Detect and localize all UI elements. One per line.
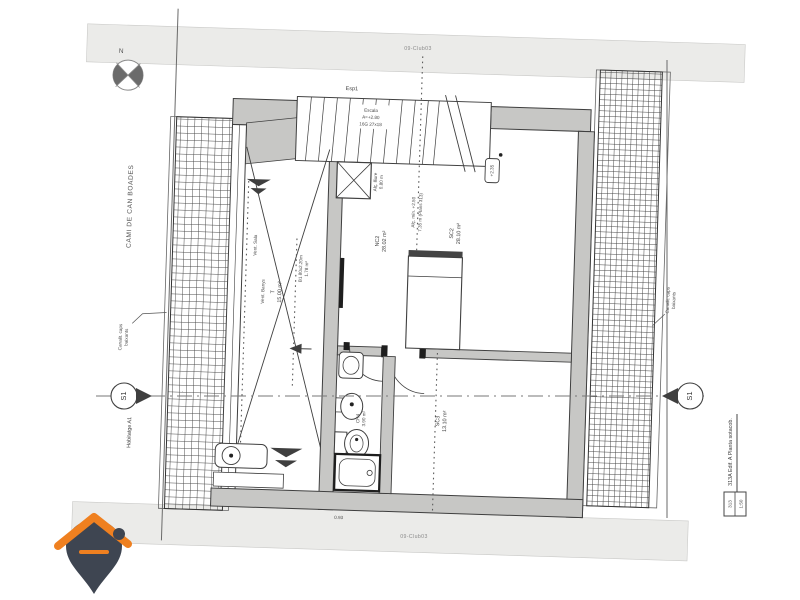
stair-label-2: A=+2.80 — [362, 115, 380, 121]
door-jamb-left — [381, 345, 387, 357]
section-marker-right: S1 — [662, 383, 703, 409]
room-b1-name: B1 80x2.20m — [298, 255, 304, 282]
room-b1-area: 1.78 m² — [304, 261, 310, 277]
logo-wordmark-bar — [79, 550, 109, 554]
staircase: Escala A=+2.80 16G 27x18 — [295, 90, 491, 172]
title-block: 313A Edif. A Planta sotacob. 313 1:50 — [724, 414, 746, 516]
slope-arrow-bottom — [270, 448, 303, 468]
section-marker-left: S1 — [111, 383, 152, 409]
floor-plan-canvas: N CAMI DE CAN BOADES Habitatge A1 Canali… — [0, 0, 800, 600]
bench — [213, 472, 283, 488]
stair-label-1: Escala — [364, 108, 378, 113]
ridge-annotation: Alç. mín. +2.50 7.35 m (Plans 313) — [410, 192, 423, 232]
ridge-note-1: Alç. mín. +2.50 — [410, 196, 416, 227]
canal-right-line1: Canalit. caps — [665, 286, 671, 313]
ref-bottom: 09-Club03 — [400, 534, 428, 540]
bed — [406, 250, 463, 350]
logo-roof-dot — [113, 528, 125, 540]
section-arrow-right — [662, 388, 678, 404]
room-nc2-area: 28.02 m² — [382, 230, 389, 252]
vent-banys-label: Vent. Banys — [260, 278, 266, 303]
dwelling-label: Habitatge A1 — [126, 417, 133, 448]
room-t-name: T — [270, 289, 276, 293]
north-label: N — [119, 48, 125, 55]
stair-label-3: 16G 27x18 — [359, 121, 382, 127]
title-block-scale: 1:50 — [739, 499, 744, 508]
room-sc3-area: 13.10 m² — [442, 410, 449, 432]
canal-left-leader — [132, 311, 166, 324]
room-sc3-name: SC3 — [435, 416, 441, 427]
level-marker-value: +2.35 — [489, 164, 494, 176]
entry-arrow — [289, 343, 311, 354]
section-right-label: S1 — [685, 391, 694, 400]
ref-top: 09-Club03 — [404, 46, 432, 52]
vent-sala-label: Vent. Sala — [252, 234, 258, 256]
room-label-sc2: SC2 28.10 m² — [449, 222, 463, 244]
room-label-sc3: SC3 13.10 m² — [435, 410, 449, 432]
realty-logo — [58, 517, 128, 594]
right-terrace-hatch — [583, 70, 671, 508]
room-sc2-area: 28.10 m² — [456, 223, 463, 245]
shaft — [336, 162, 371, 199]
wall-entry-landing — [245, 116, 298, 166]
wall-top-right — [491, 107, 592, 132]
partition-sc2-sc3 — [336, 344, 571, 398]
room-ch4-area: 3.90 m² — [361, 410, 367, 426]
section-left-label: S1 — [119, 391, 128, 400]
dim-label: 0.93 — [334, 515, 344, 520]
room-label-b1: B1 80x2.20m 1.78 m² — [298, 255, 310, 283]
canal-left-line1: Canalit. caps — [117, 323, 123, 350]
canal-annotation-left: Canalit. caps baixants — [117, 311, 166, 352]
shaft-note-1: Alç. lliure — [372, 172, 378, 191]
room-sc2-name: SC2 — [449, 228, 455, 239]
section-arrow-left — [136, 388, 152, 404]
canal-annotation-right: Canalit. caps baixants — [652, 286, 676, 327]
room-label-t: T 15.00 m² — [270, 281, 284, 303]
drawing-sheet: N CAMI DE CAN BOADES Habitatge A1 Canali… — [0, 0, 800, 600]
ridge-note-2: 7.35 m (Plans 313) — [417, 192, 423, 231]
room-t-area: 15.00 m² — [277, 281, 284, 303]
street-label: CAMI DE CAN BOADES — [126, 165, 136, 249]
slope-diagonals — [237, 147, 329, 447]
title-block-sheet-code: 313 — [728, 500, 733, 508]
partition-bath — [379, 356, 395, 493]
room-ch4-name: CH4 — [355, 413, 360, 423]
bathtub — [334, 454, 380, 491]
sink — [339, 352, 364, 379]
room-label-nc2: NC2 28.02 m² — [375, 230, 389, 252]
canal-right-line2: baixants — [671, 291, 677, 309]
title-block-title: 313A Edif. A Planta sotacob. — [728, 418, 734, 486]
canal-left-line2: baixants — [124, 328, 130, 346]
esp-label: Esp1 — [346, 86, 358, 92]
room-nc2-name: NC2 — [375, 236, 381, 247]
slope-arrow-top — [246, 179, 270, 195]
tilted-plan-group: N CAMI DE CAN BOADES Habitatge A1 Canali… — [71, 6, 746, 562]
shaft-note-2: 0.80 m — [379, 175, 384, 189]
